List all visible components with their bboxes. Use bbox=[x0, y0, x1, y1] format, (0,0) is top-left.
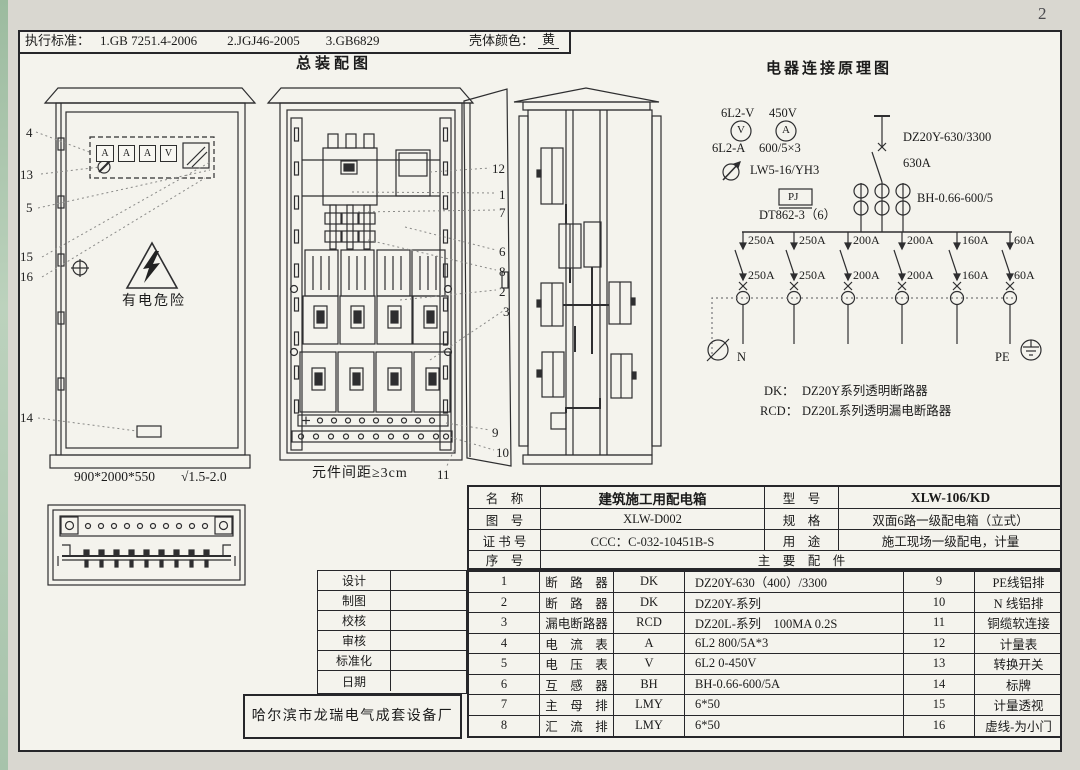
part-no: 7 bbox=[469, 695, 540, 716]
part-no: 4 bbox=[469, 634, 540, 655]
meter-window-v: V bbox=[160, 145, 177, 162]
part-name: 断 路 器 bbox=[540, 572, 614, 593]
name-value: 建筑施工用配电箱 bbox=[541, 487, 765, 509]
pj-meter-box-label: PJ bbox=[788, 191, 798, 203]
part-name2: 标牌 bbox=[975, 675, 1062, 696]
part-name: 汇 流 排 bbox=[540, 716, 614, 737]
part-name: 断 路 器 bbox=[540, 593, 614, 614]
use-value: 施工现场一级配电，计量 bbox=[839, 530, 1062, 551]
branch5-rating-bottom: 160A bbox=[962, 269, 989, 282]
branch3-rating-bottom: 200A bbox=[853, 269, 880, 282]
callout-2: 2 bbox=[499, 285, 506, 299]
voltmeter-symbol: V bbox=[737, 124, 745, 136]
callout-4: 4 bbox=[26, 126, 33, 140]
callout-16: 16 bbox=[20, 270, 33, 284]
energy-meter-label: DT862-3（6） bbox=[759, 209, 836, 223]
ammeter-symbol: A bbox=[782, 124, 790, 136]
sign-label-check: 校核 bbox=[318, 611, 391, 631]
part-spec: BH-0.66-600/5A bbox=[685, 675, 904, 696]
sign-blank-cell bbox=[391, 671, 466, 691]
sign-label-date: 日期 bbox=[318, 671, 391, 691]
main-breaker-rating-label: 630A bbox=[903, 157, 931, 171]
callout-8: 8 bbox=[499, 265, 506, 279]
part-spec: 6L2 800/5A*3 bbox=[685, 634, 904, 655]
sign-label-design: 设计 bbox=[318, 571, 391, 591]
part-no: 6 bbox=[469, 675, 540, 696]
ct-ratio-label: 600/5×3 bbox=[759, 142, 801, 156]
legend-rcd-value: DZ20L系列透明漏电断路器 bbox=[802, 405, 951, 419]
standards-label: 执行标准： bbox=[25, 34, 90, 48]
model-value: XLW-106/KD bbox=[839, 487, 1062, 509]
part-no: 3 bbox=[469, 613, 540, 634]
sign-blank-cell bbox=[391, 611, 466, 631]
ammeter-model-label: 6L2-A bbox=[712, 142, 745, 156]
spec-value: 双面6路一级配电箱（立式） bbox=[839, 509, 1062, 530]
main-parts-header: 主 要 配 件 bbox=[541, 551, 1062, 568]
part-code: RCD bbox=[614, 613, 685, 634]
part-no2: 14 bbox=[904, 675, 975, 696]
model-label: 型 号 bbox=[765, 487, 839, 509]
legend-dk-value: DZ20Y系列透明断路器 bbox=[802, 385, 928, 399]
voltmeter-model-label: 6L2-V bbox=[721, 107, 754, 121]
callout-14: 14 bbox=[20, 411, 33, 425]
meter-window-a3: A bbox=[139, 145, 156, 162]
ct-model-label: BH-0.66-600/5 bbox=[917, 192, 993, 206]
callout-15: 15 bbox=[20, 250, 33, 264]
part-name: 主 母 排 bbox=[540, 695, 614, 716]
part-spec: 6*50 bbox=[685, 716, 904, 737]
component-spacing-note: 元件间距≥3cm bbox=[312, 466, 408, 481]
part-no: 8 bbox=[469, 716, 540, 737]
part-code: V bbox=[614, 654, 685, 675]
sign-blank-cell bbox=[391, 631, 466, 651]
meter-window-a1: A bbox=[96, 145, 114, 162]
use-label: 用 途 bbox=[765, 530, 839, 551]
changeover-switch-label: LW5-16/YH3 bbox=[750, 164, 819, 178]
assembly-drawing-title: 总装配图 bbox=[296, 56, 372, 73]
meter-window-a2: A bbox=[118, 145, 135, 162]
branch3-rating-top: 200A bbox=[853, 234, 880, 247]
manufacturer-box: 哈尔滨市龙瑞电气成套设备厂 bbox=[243, 694, 462, 739]
pe-label: PE bbox=[995, 351, 1010, 365]
legend-rcd-key: RCD： bbox=[760, 405, 798, 419]
schematic-title: 电器连接原理图 bbox=[766, 61, 892, 78]
cert-label: 证 书 号 bbox=[469, 530, 541, 551]
standard-3: 3.GB6829 bbox=[326, 34, 380, 48]
branch5-rating-top: 160A bbox=[962, 234, 989, 247]
part-no2: 16 bbox=[904, 716, 975, 737]
part-name2: 铜缆软连接 bbox=[975, 613, 1062, 634]
part-code: DK bbox=[614, 572, 685, 593]
sign-blank-cell bbox=[391, 591, 466, 611]
part-no2: 12 bbox=[904, 634, 975, 655]
part-spec: DZ20L-系列 100MA 0.2S bbox=[685, 613, 904, 634]
drawing-no-value: XLW-D002 bbox=[541, 509, 765, 530]
part-name2: N 线铝排 bbox=[975, 593, 1062, 614]
surface-finish-mark: √1.5-2.0 bbox=[181, 470, 227, 485]
part-no: 2 bbox=[469, 593, 540, 614]
callout-10: 10 bbox=[496, 446, 509, 460]
part-name2: 计量表 bbox=[975, 634, 1062, 655]
part-name: 电 流 表 bbox=[540, 634, 614, 655]
part-no2: 11 bbox=[904, 613, 975, 634]
drawing-no-label: 图 号 bbox=[469, 509, 541, 530]
part-spec: DZ20Y-630（400）/3300 bbox=[685, 572, 904, 593]
manufacturer-name: 哈尔滨市龙瑞电气成套设备厂 bbox=[252, 709, 454, 724]
branch4-rating-bottom: 200A bbox=[907, 269, 934, 282]
callout-7: 7 bbox=[499, 206, 506, 220]
electric-danger-warning: 有电危险 bbox=[122, 294, 186, 309]
part-no2: 15 bbox=[904, 695, 975, 716]
signature-block: 设计 制图 校核 审核 标准化 日期 bbox=[317, 570, 467, 694]
callout-1: 1 bbox=[499, 188, 506, 202]
standard-1: 1.GB 7251.4-2006 bbox=[100, 34, 197, 48]
callout-12: 12 bbox=[492, 162, 505, 176]
spec-label: 规 格 bbox=[765, 509, 839, 530]
part-code: DK bbox=[614, 593, 685, 614]
part-name2: PE线铝排 bbox=[975, 572, 1062, 593]
standard-2: 2.JGJ46-2005 bbox=[227, 34, 300, 48]
voltage-rating-label: 450V bbox=[769, 107, 797, 121]
callout-9: 9 bbox=[492, 426, 499, 440]
callout-5: 5 bbox=[26, 201, 33, 215]
part-code: LMY bbox=[614, 716, 685, 737]
callout-11: 11 bbox=[437, 468, 450, 482]
sign-label-draft: 制图 bbox=[318, 591, 391, 611]
cert-value: CCC：C-032-10451B-S bbox=[541, 530, 765, 551]
main-breaker-model-label: DZ20Y-630/3300 bbox=[903, 131, 991, 145]
standards-bar: 执行标准： 1.GB 7251.4-2006 2.JGJ46-2005 3.GB… bbox=[18, 30, 571, 54]
serial-label: 序 号 bbox=[469, 551, 541, 568]
cabinet-dimensions: 900*2000*550 bbox=[74, 470, 155, 485]
branch4-rating-top: 200A bbox=[907, 234, 934, 247]
callout-6: 6 bbox=[499, 245, 506, 259]
part-no: 1 bbox=[469, 572, 540, 593]
sign-blank-cell bbox=[391, 571, 466, 591]
legend-dk-key: DK： bbox=[764, 385, 795, 399]
shell-color-value: 黄 bbox=[538, 33, 559, 48]
main-parts-table: 1 断 路 器 DK DZ20Y-630（400）/3300 9 PE线铝排 2… bbox=[467, 570, 1062, 738]
branch2-rating-top: 250A bbox=[799, 234, 826, 247]
part-name: 漏电断路器 bbox=[540, 613, 614, 634]
name-label: 名 称 bbox=[469, 487, 541, 509]
part-code: LMY bbox=[614, 695, 685, 716]
part-code: A bbox=[614, 634, 685, 655]
part-code: BH bbox=[614, 675, 685, 696]
sign-label-review: 审核 bbox=[318, 631, 391, 651]
part-no2: 10 bbox=[904, 593, 975, 614]
branch2-rating-bottom: 250A bbox=[799, 269, 826, 282]
part-name: 电 压 表 bbox=[540, 654, 614, 675]
neutral-label: N bbox=[737, 351, 746, 365]
part-name2: 虚线-为小门 bbox=[975, 716, 1062, 737]
branch1-rating-bottom: 250A bbox=[748, 269, 775, 282]
branch1-rating-top: 250A bbox=[748, 234, 775, 247]
part-spec: 6L2 0-450V bbox=[685, 654, 904, 675]
part-name: 互 感 器 bbox=[540, 675, 614, 696]
callout-3: 3 bbox=[503, 305, 510, 319]
callout-13: 13 bbox=[20, 168, 33, 182]
part-no2: 9 bbox=[904, 572, 975, 593]
shell-color-label: 壳体颜色： bbox=[469, 34, 534, 48]
part-spec: DZ20Y-系列 bbox=[685, 593, 904, 614]
sign-label-standardize: 标准化 bbox=[318, 651, 391, 671]
part-no2: 13 bbox=[904, 654, 975, 675]
title-block: 名 称 建筑施工用配电箱 型 号 XLW-106/KD 图 号 XLW-D002… bbox=[467, 485, 1062, 570]
part-name2: 转换开关 bbox=[975, 654, 1062, 675]
branch6-rating-top: 60A bbox=[1014, 234, 1035, 247]
part-name2: 计量透视 bbox=[975, 695, 1062, 716]
sign-blank-cell bbox=[391, 651, 466, 671]
branch6-rating-bottom: 60A bbox=[1014, 269, 1035, 282]
part-no: 5 bbox=[469, 654, 540, 675]
part-spec: 6*50 bbox=[685, 695, 904, 716]
